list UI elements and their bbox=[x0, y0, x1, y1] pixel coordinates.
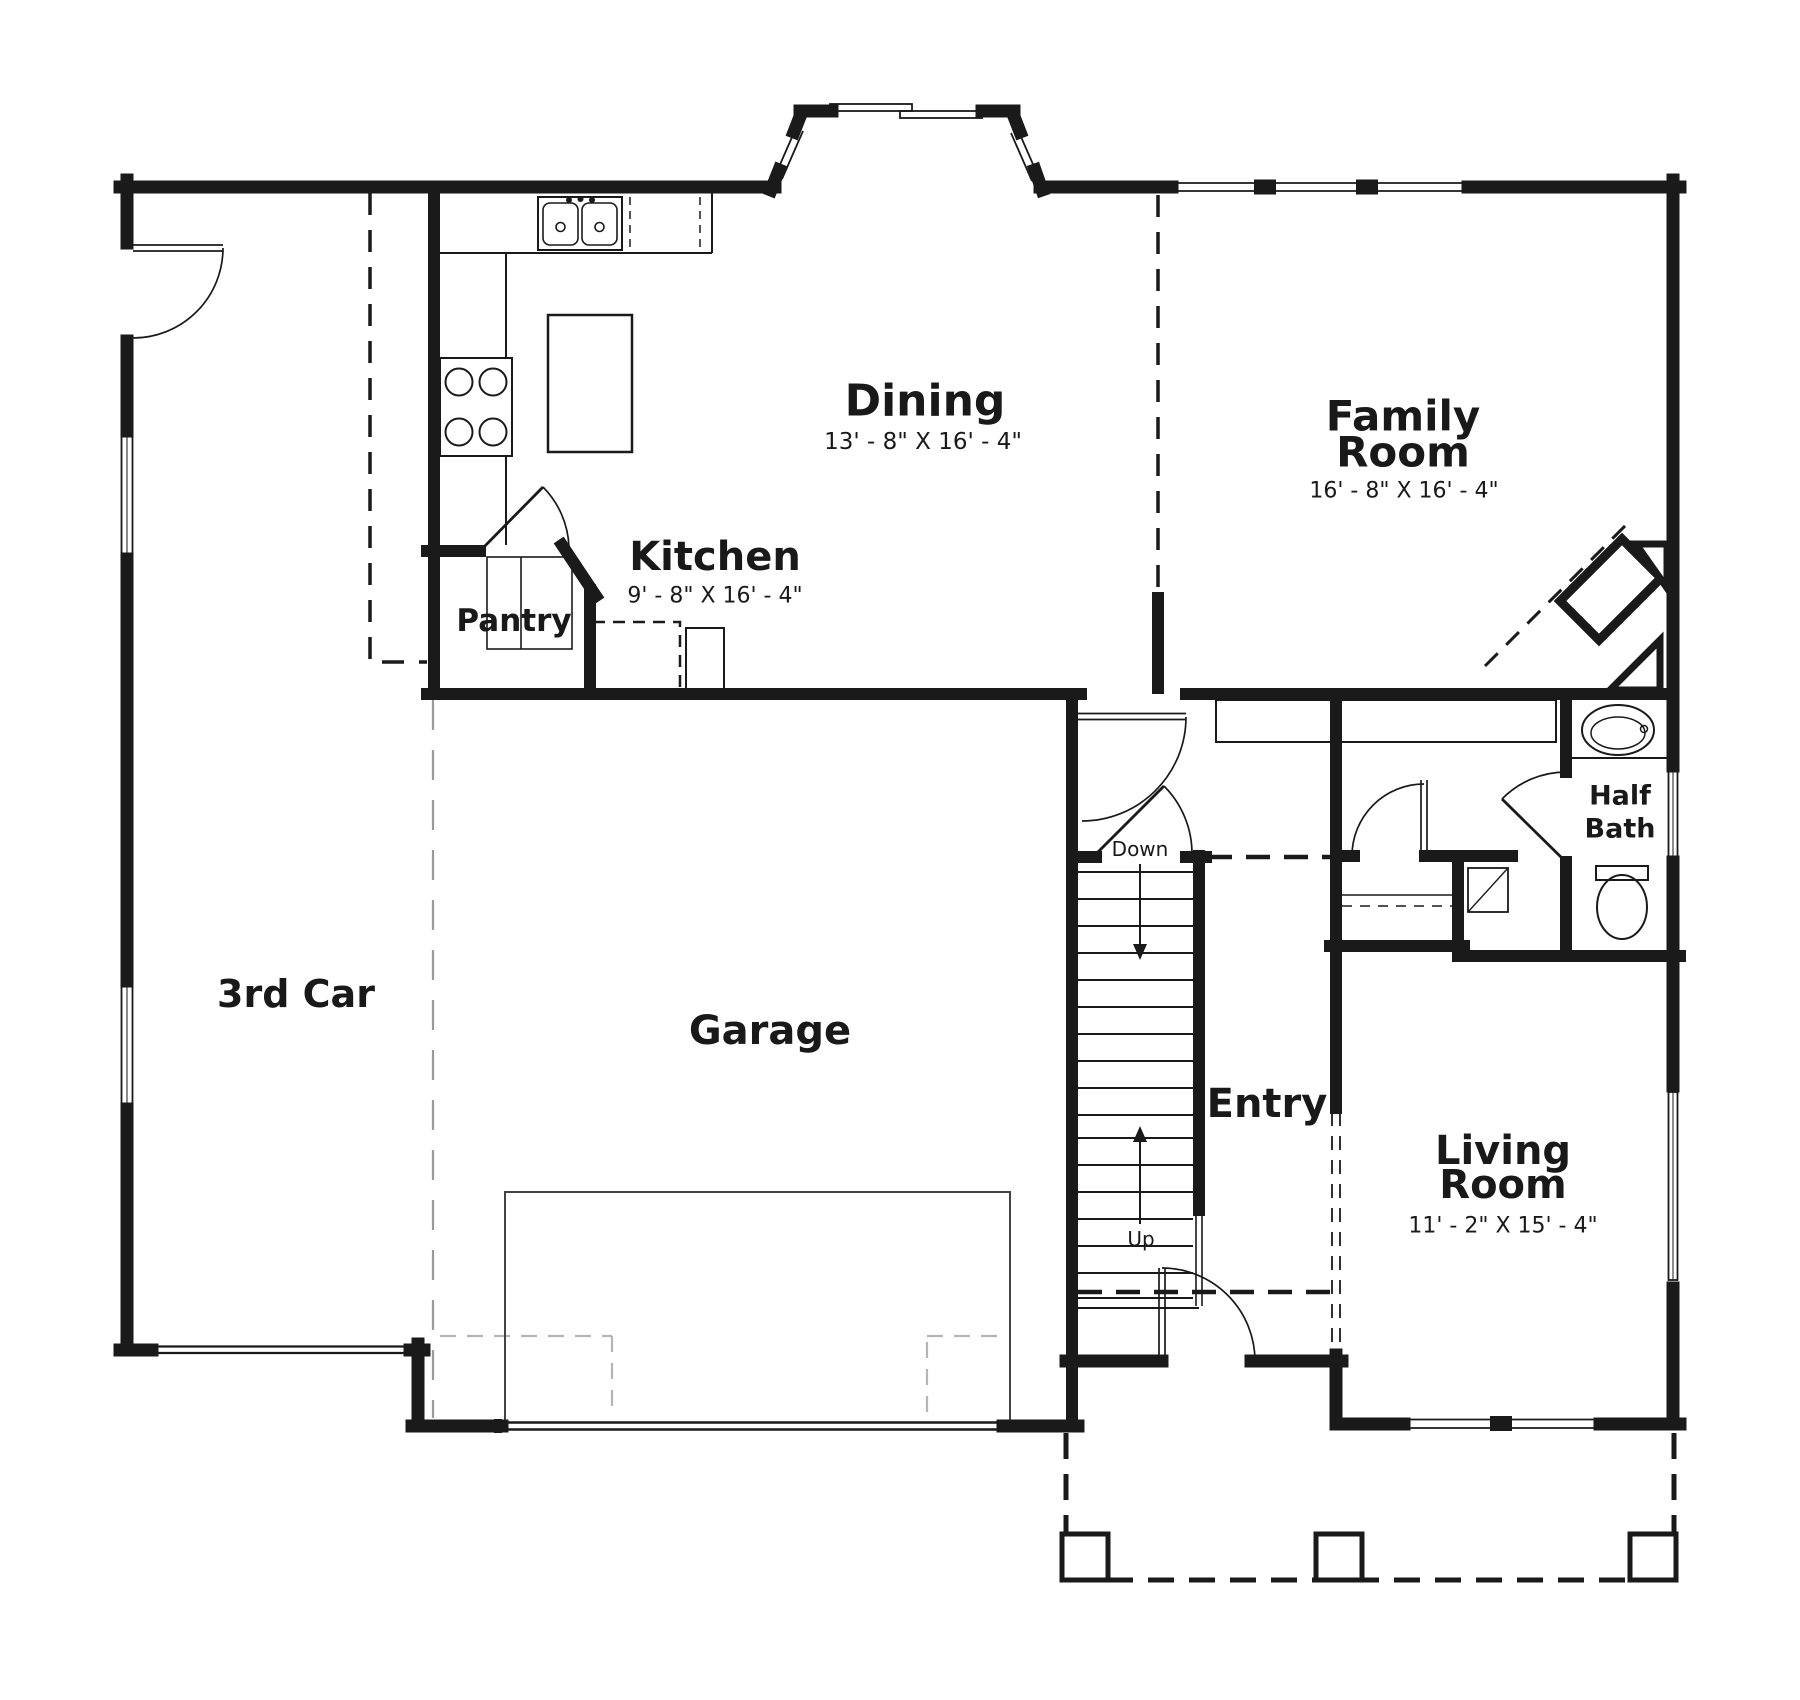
room-label-kitchen: Kitchen bbox=[629, 534, 801, 580]
porch-posts bbox=[1062, 1534, 1676, 1580]
room-dims-family: 16' - 8" X 16' - 4" bbox=[1309, 479, 1498, 504]
window-mullions bbox=[494, 180, 1512, 1434]
floor-plan: Dining 13' - 8" X 16' - 4" Family Room 1… bbox=[0, 0, 1800, 1700]
room-label-half-bath-1: Half bbox=[1589, 781, 1651, 812]
porch-outline bbox=[1066, 1433, 1680, 1580]
floor-plan-drawing bbox=[0, 0, 1800, 1700]
corner-fireplace bbox=[1560, 539, 1667, 690]
room-label-third-car: 3rd Car bbox=[217, 972, 375, 1016]
hall-closet-details bbox=[1216, 700, 1556, 912]
room-label-half-bath-2: Bath bbox=[1585, 814, 1656, 845]
room-label-garage: Garage bbox=[689, 1008, 851, 1054]
interior-walls bbox=[427, 187, 1680, 1426]
room-dims-dining: 13' - 8" X 16' - 4" bbox=[824, 429, 1022, 455]
room-label-pantry: Pantry bbox=[456, 603, 571, 639]
room-label-living-2: Room bbox=[1439, 1162, 1566, 1208]
room-label-dining: Dining bbox=[845, 376, 1006, 427]
garage-gray-lines bbox=[433, 700, 1005, 1418]
room-label-family-2: Room bbox=[1336, 428, 1470, 477]
room-dims-kitchen: 9' - 8" X 16' - 4" bbox=[627, 584, 802, 609]
room-dims-living: 11' - 2" X 15' - 4" bbox=[1408, 1214, 1597, 1239]
stair-label-down: Down bbox=[1112, 837, 1169, 861]
stair-label-up: Up bbox=[1127, 1227, 1154, 1251]
garage-door-track bbox=[505, 1192, 1010, 1420]
room-label-entry: Entry bbox=[1207, 1081, 1328, 1127]
